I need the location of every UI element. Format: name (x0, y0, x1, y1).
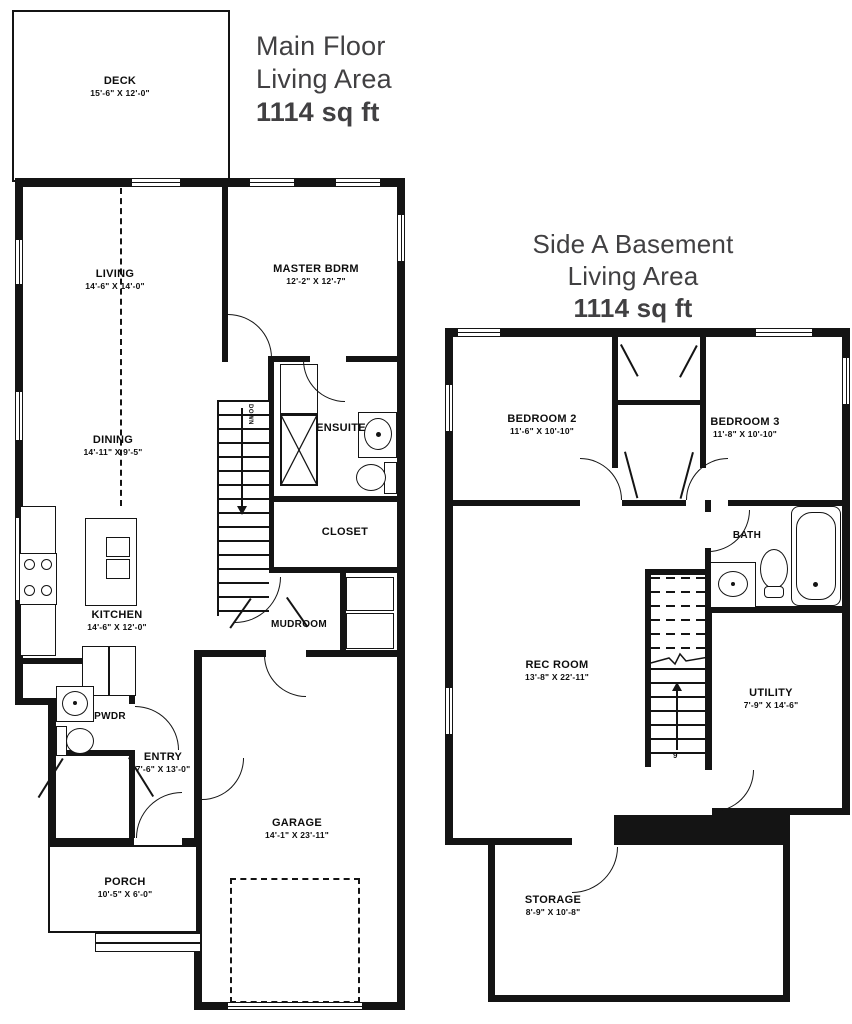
island-sink (106, 559, 130, 579)
toilet-icon (760, 549, 788, 589)
wall (488, 995, 790, 1002)
burner (41, 559, 52, 570)
garage-door-track (230, 878, 360, 1003)
stairs-riser-count: 9 (673, 751, 677, 760)
wall (712, 808, 850, 815)
wall (346, 356, 397, 362)
sink-drain (73, 701, 77, 705)
window (445, 688, 453, 734)
room-label-master: MASTER BDRM 12'-2" X 12'-7" (240, 262, 392, 287)
room-label-entry: ENTRY 7'-6" X 13'-0" (113, 750, 213, 775)
wall (397, 178, 405, 1010)
toilet-icon (356, 464, 386, 491)
stairs-arrow-head-down (237, 506, 247, 515)
wall (274, 496, 397, 502)
window (15, 392, 23, 440)
wall (783, 845, 790, 1002)
island-sink (106, 537, 130, 557)
room-label-rec-room: REC ROOM 13'-8" X 22'-11" (482, 658, 632, 683)
main-floor-title-line1: Main Floor (256, 30, 436, 63)
burner (41, 585, 52, 596)
room-label-living: LIVING 14'-6" X 14'-0" (40, 267, 190, 292)
window (842, 358, 850, 404)
basement-title-line1: Side A Basement (498, 228, 768, 260)
door-arc (228, 314, 272, 358)
wall (306, 650, 397, 657)
room-label-storage: STORAGE 8'-9" X 10'-8" (478, 893, 628, 918)
door-arc (686, 458, 728, 500)
window (458, 328, 500, 337)
main-floor-title: Main Floor Living Area 1114 sq ft (256, 30, 436, 129)
room-label-bedroom2: BEDROOM 2 11'-6" X 10'-10" (467, 412, 617, 437)
sink-drain (731, 582, 735, 586)
garage-door-opening (228, 1002, 362, 1010)
room-label-deck: DECK 15'-6" X 12'-0" (45, 74, 195, 99)
bifold-door-line (620, 344, 639, 377)
basement-sqft: 1114 sq ft (498, 292, 768, 324)
basement-title-line2: Living Area (498, 260, 768, 292)
window (15, 240, 23, 284)
room-label-garage: GARAGE 14'-1" X 23'-11" (222, 816, 372, 841)
room-label-bedroom3: BEDROOM 3 11'-8" X 10'-10" (670, 415, 820, 440)
room-label-utility: UTILITY 7'-9" X 14'-6" (706, 686, 836, 711)
door-leaf-line (624, 451, 638, 498)
room-label-kitchen: KITCHEN 14'-6" X 12'-0" (42, 608, 192, 633)
porch-step (95, 933, 201, 943)
main-floor-sqft: 1114 sq ft (256, 96, 436, 129)
room-label-closet: CLOSET (305, 525, 385, 539)
window (397, 215, 405, 261)
wall (614, 815, 790, 845)
stairs-break-line (647, 652, 709, 668)
stairs-down-label: DOWN (247, 404, 253, 425)
toilet-base (764, 586, 784, 598)
door-arc (264, 655, 306, 697)
stairs-arrow-shaft (676, 690, 678, 750)
stairs-arrow-shaft (241, 408, 243, 510)
window (132, 178, 180, 187)
wall (612, 400, 706, 405)
stairs-basement-upper (651, 577, 705, 653)
main-floor-title-line2: Living Area (256, 63, 436, 96)
window (756, 328, 812, 337)
wall (645, 569, 711, 575)
stairs-arrow-head-up (672, 682, 682, 691)
wall (453, 500, 580, 506)
burner (24, 585, 35, 596)
room-label-pwdr: PWDR (80, 710, 140, 723)
window (250, 178, 294, 187)
wall (445, 838, 572, 845)
wall (194, 650, 202, 1010)
burner (24, 559, 35, 570)
door-arc (135, 706, 179, 750)
window (336, 178, 380, 187)
door-arc (136, 792, 182, 838)
bifold-door-line (679, 345, 698, 378)
toilet-icon (66, 728, 94, 754)
room-label-dining: DINING 14'-11" X 9'-5" (38, 433, 188, 458)
window (445, 385, 453, 431)
floor-plan-canvas: Main Floor Living Area 1114 sq ft DOWN (0, 0, 852, 1024)
door-arc (235, 577, 281, 623)
room-label-mudroom: MUDROOM (254, 618, 344, 631)
porch-step (95, 943, 201, 952)
wall (622, 500, 686, 506)
mudroom-locker (346, 613, 394, 649)
kitchen-counter (20, 506, 56, 554)
fridge-icon (109, 646, 136, 696)
basement-title: Side A Basement Living Area 1114 sq ft (498, 228, 768, 324)
mudroom-locker (346, 577, 394, 611)
wall (48, 838, 134, 845)
wall (268, 567, 397, 573)
wall (488, 845, 495, 1002)
room-label-porch: PORCH 10'-5" X 6'-0" (50, 875, 200, 900)
room-label-ensuite: ENSUITE (301, 421, 381, 435)
door-arc (572, 847, 618, 893)
tub-drain (813, 582, 818, 587)
door-arc (712, 770, 754, 812)
room-label-bath: BATH (712, 529, 782, 542)
wall (202, 650, 266, 657)
